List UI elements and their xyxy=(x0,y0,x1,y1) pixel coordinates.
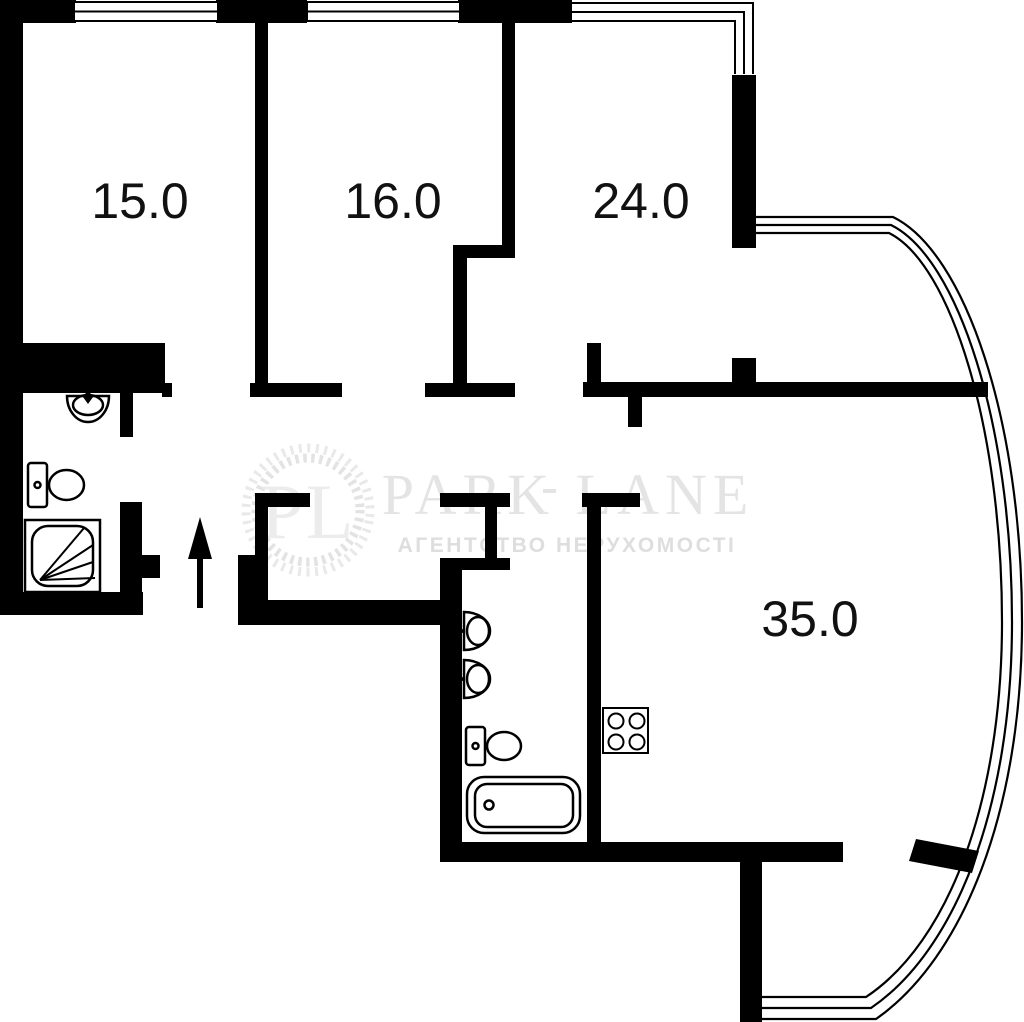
wall-segment xyxy=(250,383,342,397)
room-area-label: 16.0 xyxy=(344,173,441,229)
windows xyxy=(74,2,753,74)
window-icon xyxy=(307,2,460,21)
watermark-monogram: PL xyxy=(260,468,355,555)
bathroom-middle xyxy=(452,612,580,833)
wall-segment xyxy=(440,558,462,852)
wall-segment xyxy=(0,23,23,615)
wall-segment xyxy=(732,75,756,248)
room-area-label: 24.0 xyxy=(592,173,689,229)
floor-plan-drawing: PL PARK LANE АГЕНТСТВО НЕРУХОМОСТІ xyxy=(0,0,1024,1022)
wall-segment xyxy=(425,383,515,397)
toilet-icon xyxy=(28,463,84,507)
wall-segment xyxy=(583,382,988,397)
room-area-label: 35.0 xyxy=(761,591,858,647)
wall-segment xyxy=(255,493,268,555)
wall-segment xyxy=(628,397,642,427)
kitchen-area xyxy=(603,708,648,753)
toilet-icon xyxy=(466,727,521,765)
walls xyxy=(0,0,988,1022)
wall-segment xyxy=(587,343,601,382)
wall-segment xyxy=(216,0,307,23)
watermark-tagline: АГЕНТСТВО НЕРУХОМОСТІ xyxy=(398,534,737,557)
sink-icon xyxy=(67,390,109,422)
wall-segment xyxy=(162,383,172,397)
wall-segment xyxy=(142,555,160,578)
floor-plan-page: PL PARK LANE АГЕНТСТВО НЕРУХОМОСТІ xyxy=(0,0,1024,1022)
watermark-hyphen xyxy=(543,489,556,493)
wall-segment xyxy=(255,23,268,383)
wall-segment xyxy=(582,493,640,507)
watermark-brand: PARK LANE xyxy=(382,462,755,527)
bathtub-icon xyxy=(467,777,580,833)
wall-segment xyxy=(0,592,143,615)
room-area-label: 15.0 xyxy=(91,173,188,229)
wall-segment xyxy=(238,600,440,625)
wall-segment xyxy=(120,393,133,437)
wall-segment xyxy=(732,358,756,382)
entrance-arrow-icon xyxy=(188,517,212,608)
wall-segment xyxy=(587,507,601,842)
stove-icon xyxy=(603,708,648,753)
wall-segment xyxy=(440,493,510,507)
wall-segment xyxy=(0,0,76,23)
wall-segment xyxy=(502,23,515,258)
wall-segment xyxy=(453,258,467,383)
window-icon xyxy=(74,2,218,21)
corner-glazing-icon xyxy=(572,3,753,74)
wall-segment xyxy=(238,555,268,600)
wall-segment xyxy=(120,502,142,592)
wall-segment xyxy=(740,862,762,1022)
wall-segment xyxy=(440,842,843,862)
wall-segment xyxy=(458,0,572,23)
wall-segment xyxy=(0,343,165,393)
shower-icon xyxy=(25,520,100,592)
bathroom-left xyxy=(25,390,109,592)
wall-segment xyxy=(453,245,515,258)
